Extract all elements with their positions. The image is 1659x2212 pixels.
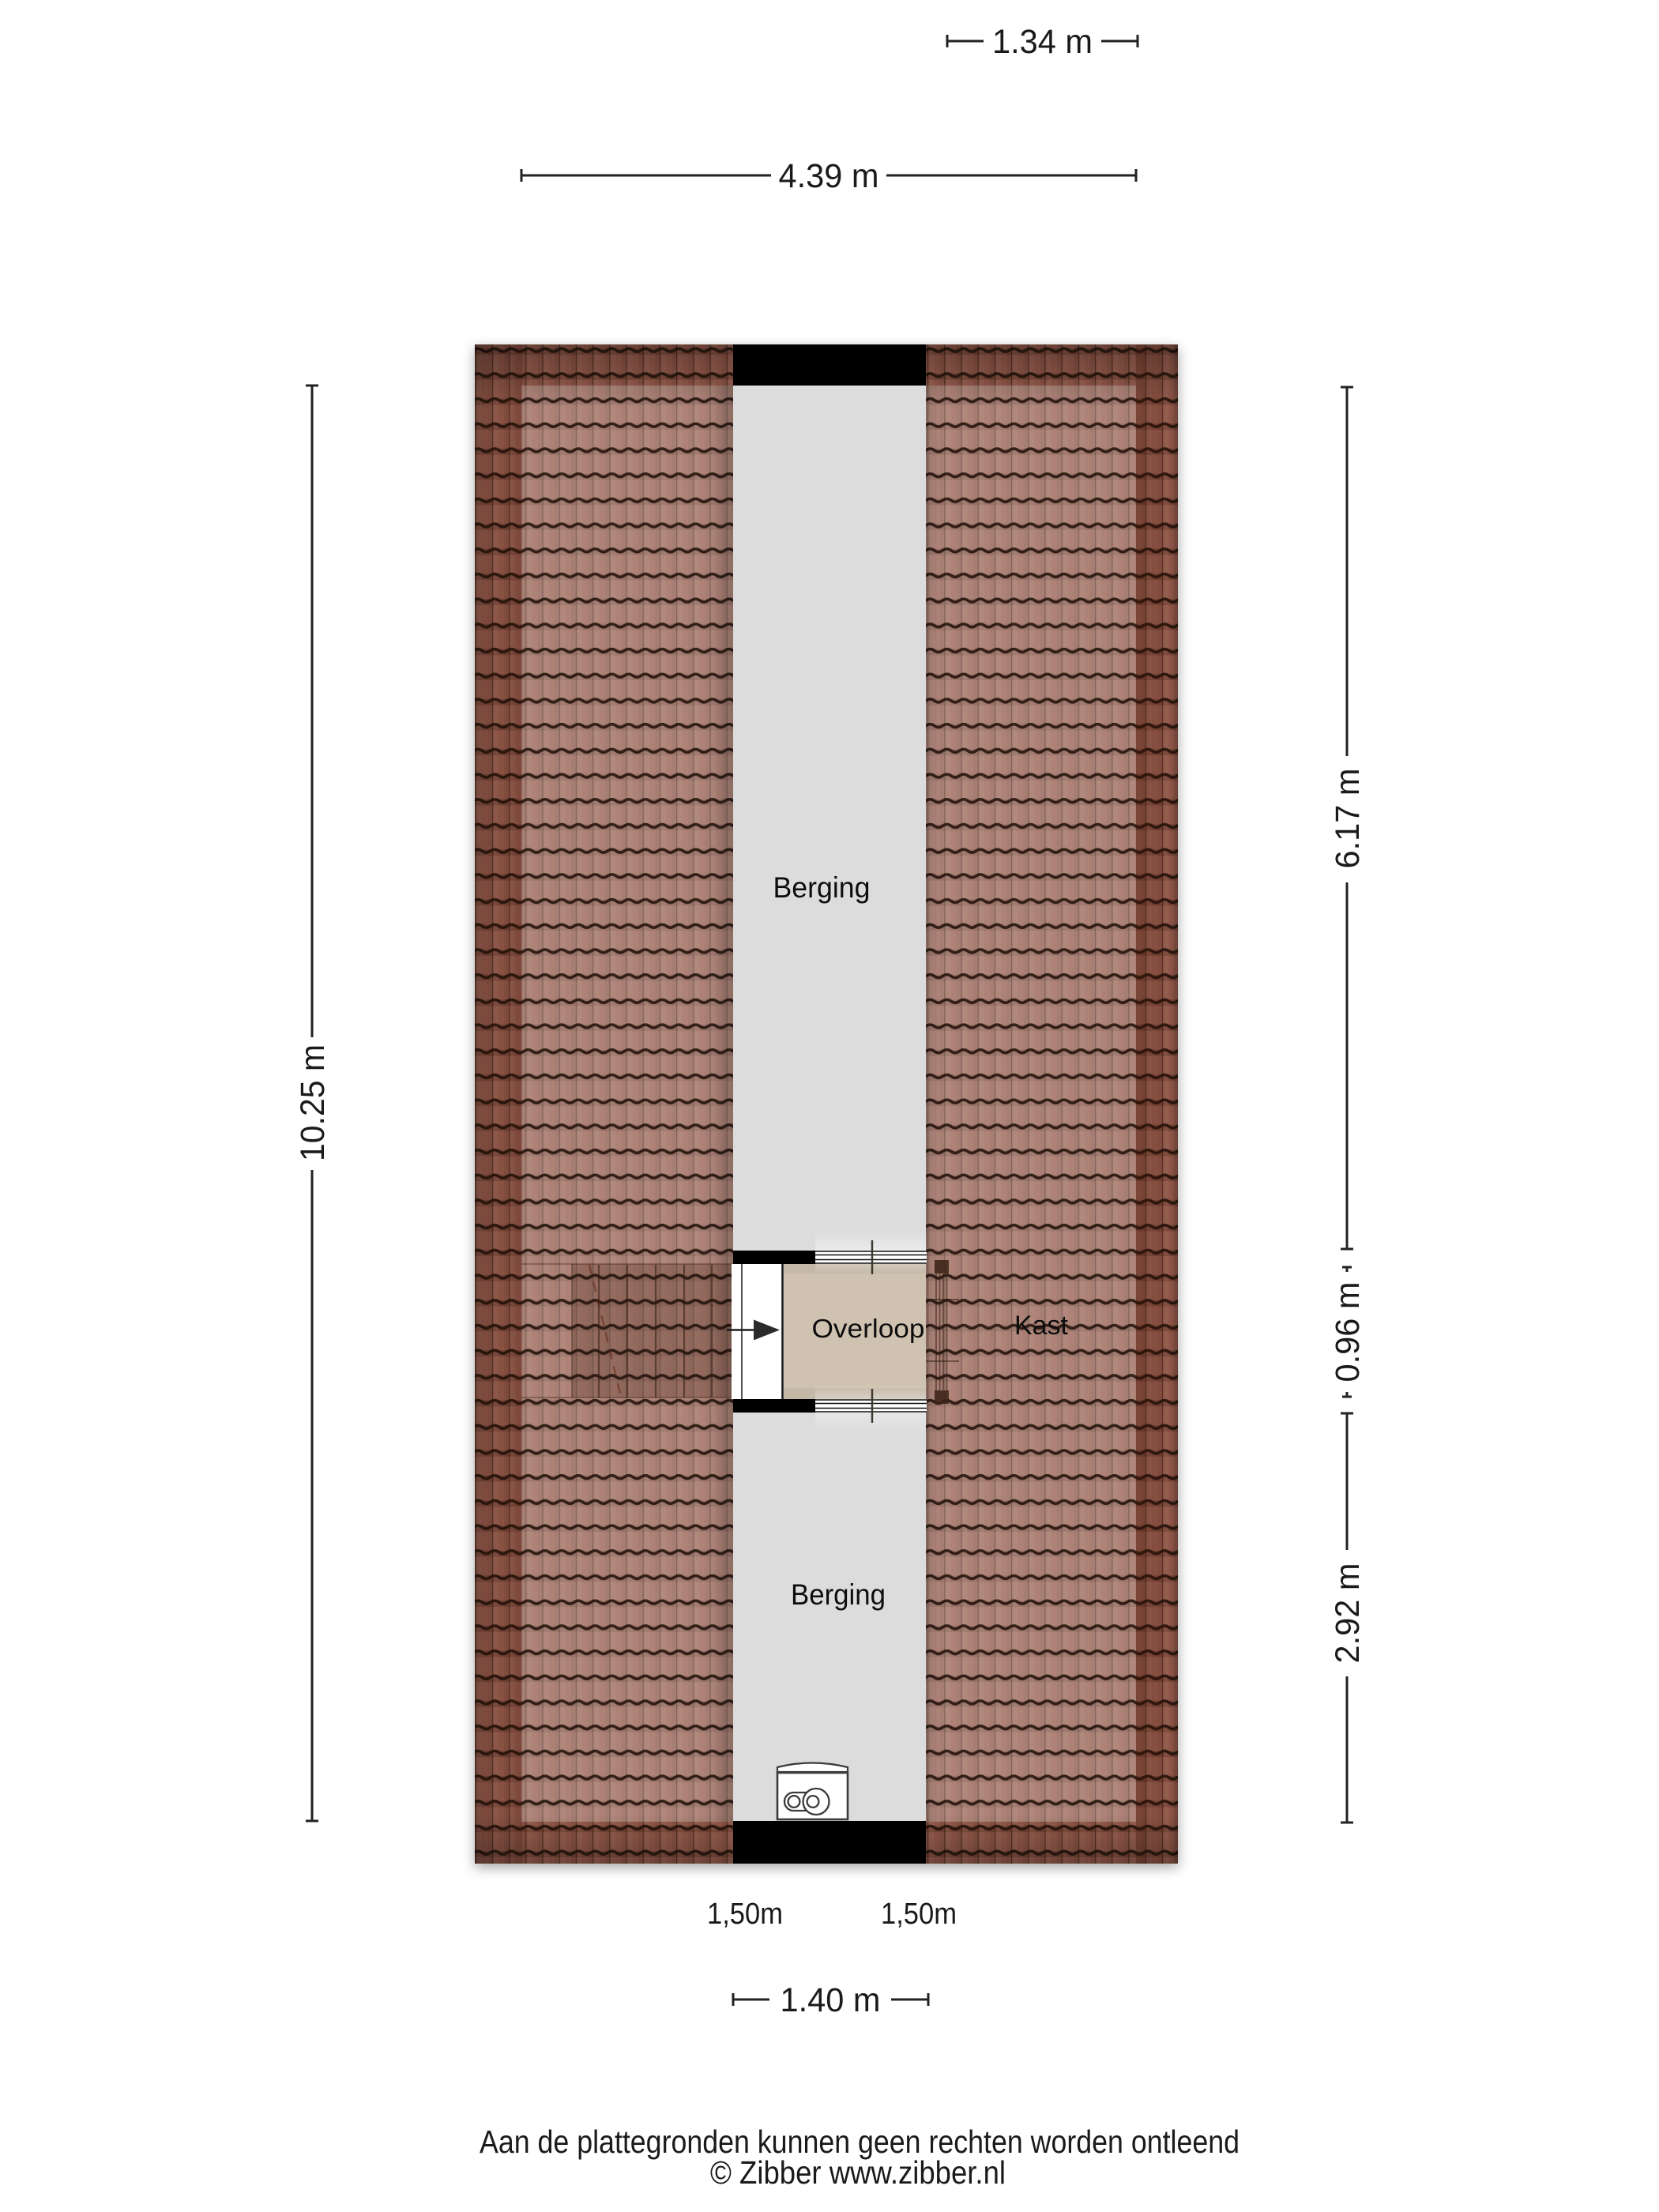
svg-text:1.40 m: 1.40 m bbox=[781, 1981, 881, 2019]
svg-text:2.92 m: 2.92 m bbox=[1329, 1563, 1367, 1664]
svg-text:Kast: Kast bbox=[1014, 1311, 1069, 1341]
svg-text:© Zibber www.zibber.nl: © Zibber www.zibber.nl bbox=[710, 2154, 1006, 2191]
svg-text:1.34 m: 1.34 m bbox=[992, 23, 1093, 61]
svg-text:Overloop: Overloop bbox=[812, 1314, 925, 1343]
svg-text:1,50m: 1,50m bbox=[881, 1898, 957, 1931]
svg-text:4.39 m: 4.39 m bbox=[779, 157, 879, 195]
svg-text:6.17 m: 6.17 m bbox=[1329, 769, 1367, 869]
svg-text:10.25 m: 10.25 m bbox=[294, 1044, 332, 1161]
svg-text:Berging: Berging bbox=[791, 1578, 886, 1611]
svg-text:1,50m: 1,50m bbox=[707, 1898, 783, 1931]
svg-text:0.96 m: 0.96 m bbox=[1329, 1282, 1367, 1382]
svg-text:Berging: Berging bbox=[773, 871, 871, 904]
